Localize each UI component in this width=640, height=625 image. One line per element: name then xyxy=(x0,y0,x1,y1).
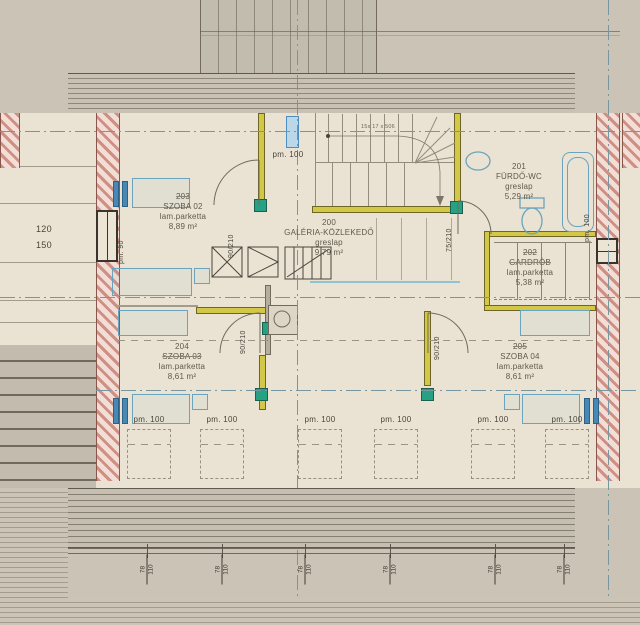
axis-line xyxy=(608,0,609,625)
door-dim: 75/210 xyxy=(446,206,453,252)
room-area: 5,38 m² xyxy=(468,278,592,288)
parapet-label: pm. 100 xyxy=(296,415,344,424)
dimension-label: 78110 xyxy=(383,555,398,585)
axis-line xyxy=(96,390,640,391)
room-floor: greslap xyxy=(458,182,580,192)
room-label-szoba-02: 203 SZOBA 02 lam.parketta 8,89 m² xyxy=(123,192,243,232)
room-number: 205 xyxy=(458,342,582,352)
dormer-window xyxy=(200,429,244,479)
headroom-dashed-line xyxy=(118,340,596,341)
door-dim: 90/210 xyxy=(240,308,247,354)
room-label-galeria: 200 GALÉRIA-KÖZLEKEDŐ greslap 9,79 m² xyxy=(266,218,392,258)
room-floor: lam.parketta xyxy=(123,212,243,222)
door-dim: 90/210 xyxy=(228,212,235,258)
floor-plan-drawing: 15x 17 x 506 xyxy=(0,0,640,625)
eaves-edge-line xyxy=(68,548,575,554)
room-label-gardrob: 202 GARDRÓB lam.parketta 5,38 m² xyxy=(468,248,592,288)
room-number: 203 xyxy=(123,192,243,202)
room-name: FÜRDŐ-WC xyxy=(458,172,580,182)
room-number: 200 xyxy=(266,218,392,228)
room-label-szoba-04: 205 SZOBA 04 lam.parketta 8,61 m² xyxy=(458,342,582,382)
dimension-label: 78110 xyxy=(488,555,503,585)
parapet-label: pm. 100 xyxy=(125,415,173,424)
room-floor: lam.parketta xyxy=(458,362,582,372)
parapet-label-vertical: pm. 90 xyxy=(118,214,125,264)
bottom-strip xyxy=(0,598,640,625)
room-label-szoba-03: 204 SZOBA 03 lam.parketta 8,61 m² xyxy=(121,342,243,382)
room-number: 204 xyxy=(121,342,243,352)
dimension-label: 78110 xyxy=(557,555,572,585)
dormer-window xyxy=(545,429,589,479)
room-area: 8,61 m² xyxy=(458,372,582,382)
parapet-label: pm. 100 xyxy=(543,415,591,424)
room-number: 201 xyxy=(458,162,580,172)
dimension-label: 78110 xyxy=(140,555,155,585)
dormer-window xyxy=(374,429,418,479)
parapet-label: pm. 100 xyxy=(372,415,420,424)
dormer-window xyxy=(127,429,171,479)
room-floor: lam.parketta xyxy=(468,268,592,278)
dimension-label: 78110 xyxy=(215,555,230,585)
room-area: 8,89 m² xyxy=(123,222,243,232)
axis-line xyxy=(0,297,640,298)
room-floor: greslap xyxy=(266,238,392,248)
parapet-label: pm. 100 xyxy=(198,415,246,424)
bottom-left-band xyxy=(0,488,68,598)
parapet-label: pm. 100 xyxy=(469,415,517,424)
dormer-window xyxy=(471,429,515,479)
room-area: 8,61 m² xyxy=(121,372,243,382)
room-name: GALÉRIA-KÖZLEKEDŐ xyxy=(266,228,392,238)
room-area: 9,79 m² xyxy=(266,248,392,258)
room-name: SZOBA 04 xyxy=(458,352,582,362)
axis-line xyxy=(0,131,640,132)
room-number: 202 xyxy=(468,248,592,258)
room-name: GARDRÓB xyxy=(468,258,592,268)
room-label-furdo-wc: 201 FÜRDŐ-WC greslap 5,29 m² xyxy=(458,162,580,202)
parapet-label-vertical: pm. 100 xyxy=(584,190,591,242)
room-floor: lam.parketta xyxy=(121,362,243,372)
door-dim: 90/210 xyxy=(434,314,441,360)
room-area: 5,29 m² xyxy=(458,192,580,202)
window-dim-width: 120 xyxy=(36,224,52,234)
dormer-window xyxy=(298,429,342,479)
bottom-eaves-band xyxy=(68,488,575,548)
room-name: SZOBA 03 xyxy=(121,352,243,362)
room-name: SZOBA 02 xyxy=(123,202,243,212)
dimension-label: 78110 xyxy=(298,555,313,585)
window-dim-height: 150 xyxy=(36,240,52,250)
parapet-label: pm. 100 xyxy=(258,150,318,159)
